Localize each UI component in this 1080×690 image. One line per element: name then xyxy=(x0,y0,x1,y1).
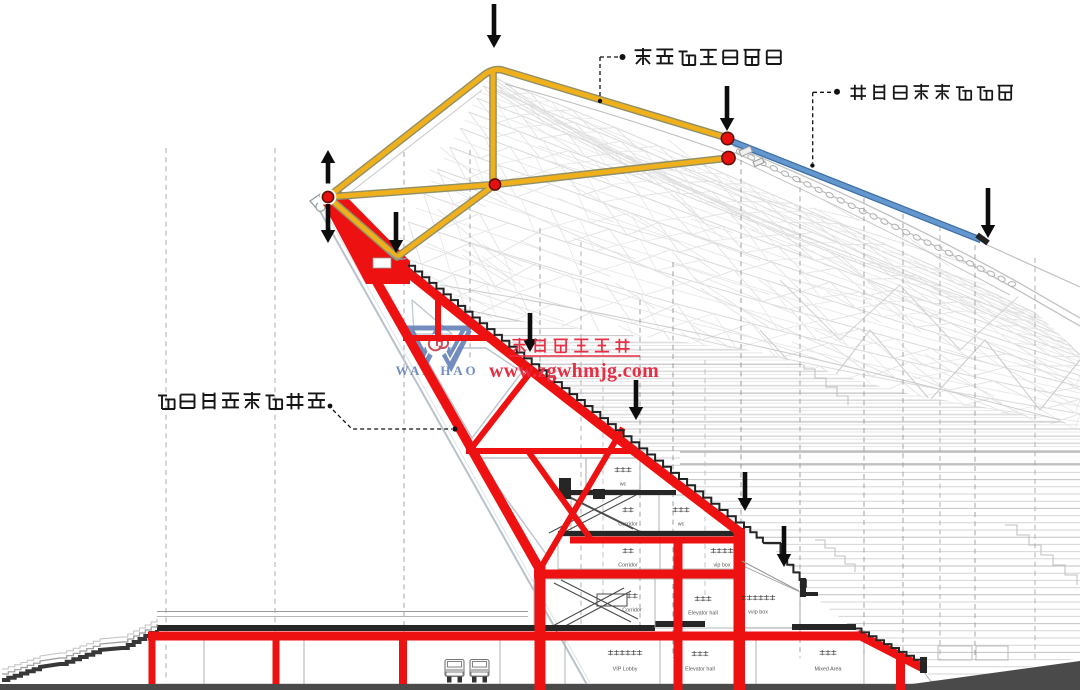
svg-text:Elevator hall: Elevator hall xyxy=(685,667,715,673)
svg-text:WAN HAO: WAN HAO xyxy=(396,363,479,378)
svg-text:vvip box: vvip box xyxy=(748,610,768,616)
svg-text:Corridor: Corridor xyxy=(618,563,638,569)
svg-text:wc: wc xyxy=(619,482,627,488)
svg-text:Corridor: Corridor xyxy=(622,608,642,614)
svg-text:VIP Lobby: VIP Lobby xyxy=(613,667,638,673)
svg-text:Mixed Area: Mixed Area xyxy=(815,667,842,673)
svg-text:Corridor: Corridor xyxy=(618,522,638,528)
svg-text:www.zgwhmjg.com: www.zgwhmjg.com xyxy=(489,360,659,382)
svg-text:Elevator hall: Elevator hall xyxy=(688,611,718,617)
svg-text:wc: wc xyxy=(677,522,685,528)
svg-text:vip box: vip box xyxy=(713,563,730,569)
